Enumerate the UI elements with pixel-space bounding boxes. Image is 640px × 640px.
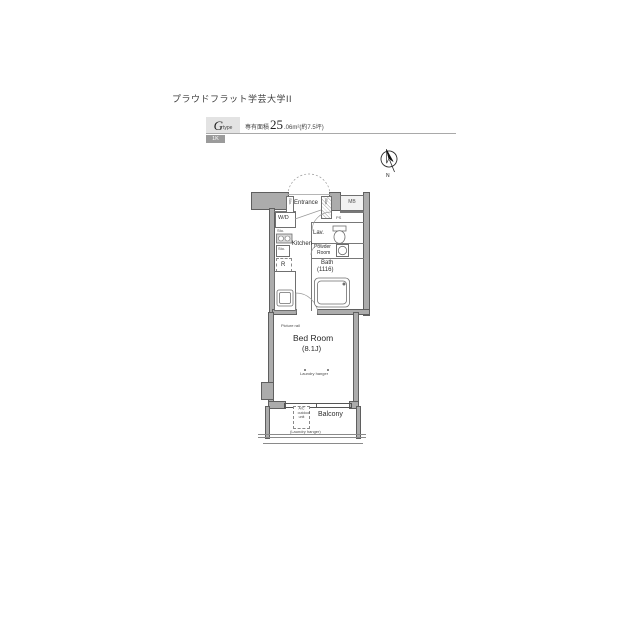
toilet-icon — [333, 226, 346, 243]
kitchen-sink-icon — [277, 290, 293, 306]
stove-icon — [277, 234, 293, 243]
plan-overlay — [0, 0, 640, 640]
hall-door-arc — [312, 212, 331, 231]
powder-door-arc — [311, 244, 322, 255]
bathtub-icon — [315, 278, 350, 307]
north-arrow-icon — [379, 147, 401, 174]
page: プラウドフラット学芸大学II Gtype 1K 専有面積 25 .06m²(約7… — [0, 0, 640, 640]
floor-plan: MB Sto. Sto. W/D Sto. Sto. R A/C outdoor… — [0, 0, 640, 640]
entrance-door-arc — [288, 174, 330, 195]
sink-icon — [338, 246, 346, 254]
